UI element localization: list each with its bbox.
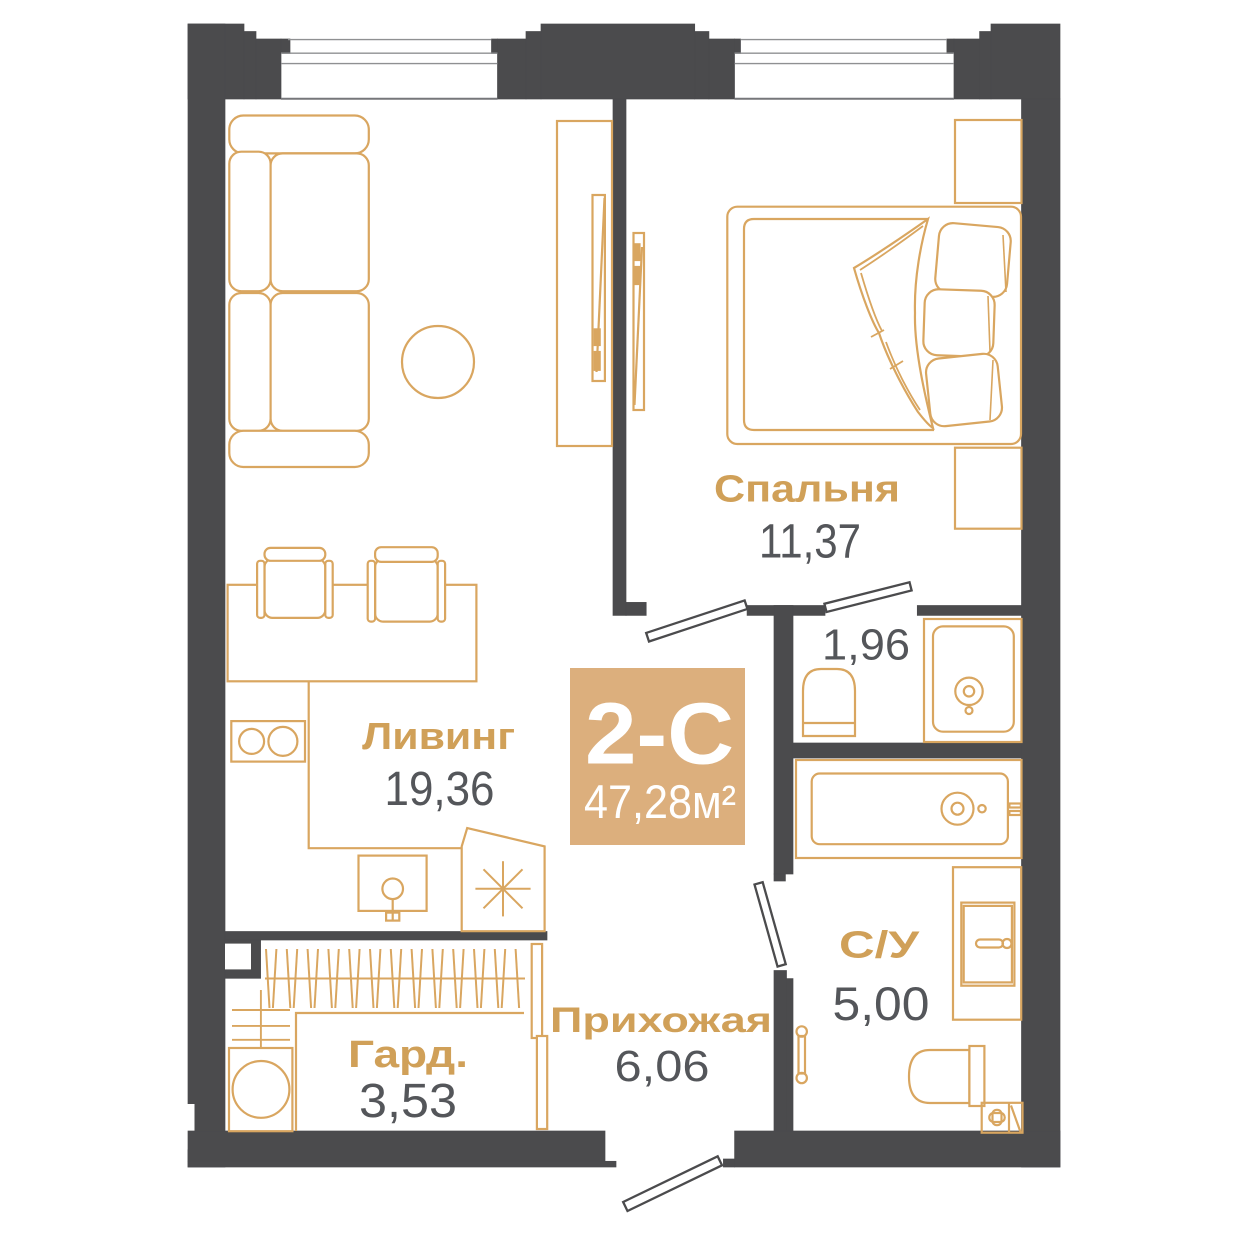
svg-text:5,00: 5,00 xyxy=(833,977,930,1030)
svg-text:2-С: 2-С xyxy=(585,686,734,783)
svg-text:Прихожая: Прихожая xyxy=(550,1001,772,1040)
svg-text:1,96: 1,96 xyxy=(822,621,910,670)
svg-text:19,36: 19,36 xyxy=(385,763,495,816)
svg-text:3,53: 3,53 xyxy=(359,1075,457,1128)
svg-text:Ливинг: Ливинг xyxy=(362,716,515,758)
svg-text:Гард.: Гард. xyxy=(348,1034,468,1076)
svg-text:Спальня: Спальня xyxy=(714,469,900,511)
svg-text:11,37: 11,37 xyxy=(759,516,861,569)
svg-text:С/У: С/У xyxy=(839,925,919,967)
svg-text:6,06: 6,06 xyxy=(615,1042,710,1091)
svg-text:47,28м²: 47,28м² xyxy=(584,775,736,828)
